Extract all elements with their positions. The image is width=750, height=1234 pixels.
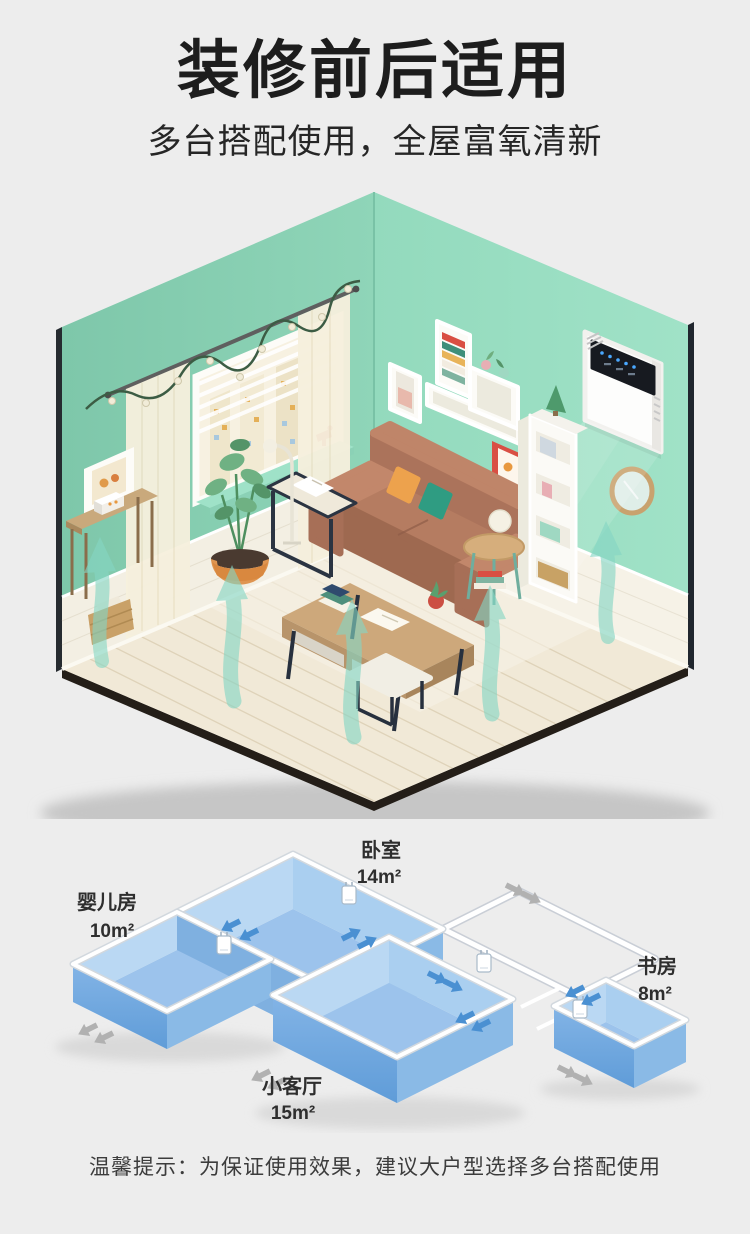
label-bedroom-area: 14m² (357, 867, 401, 888)
label-study-area: 8m² (638, 984, 672, 1005)
label-nursery-area: 10m² (90, 921, 134, 942)
page-title: 装修前后适用 (0, 0, 750, 104)
living-room-scene (0, 169, 750, 819)
label-living-name: 小客厅 (262, 1074, 322, 1098)
product-infographic-page: 装修前后适用 多台搭配使用，全屋富氧清新 (0, 0, 750, 1234)
label-nursery-name: 婴儿房 (77, 890, 137, 914)
label-bedroom-name: 卧室 (361, 838, 401, 862)
page-subtitle: 多台搭配使用，全屋富氧清新 (0, 114, 750, 163)
floor-plan-diagram: 婴儿房 10m² 卧室 14m² 书房 8m² 小客厅 15m² (0, 821, 750, 1133)
label-living-area: 15m² (271, 1103, 315, 1124)
label-study-name: 书房 (637, 954, 677, 978)
warm-tip: 温馨提示：为保证使用效果，建议大户型选择多台搭配使用 (0, 1151, 750, 1181)
